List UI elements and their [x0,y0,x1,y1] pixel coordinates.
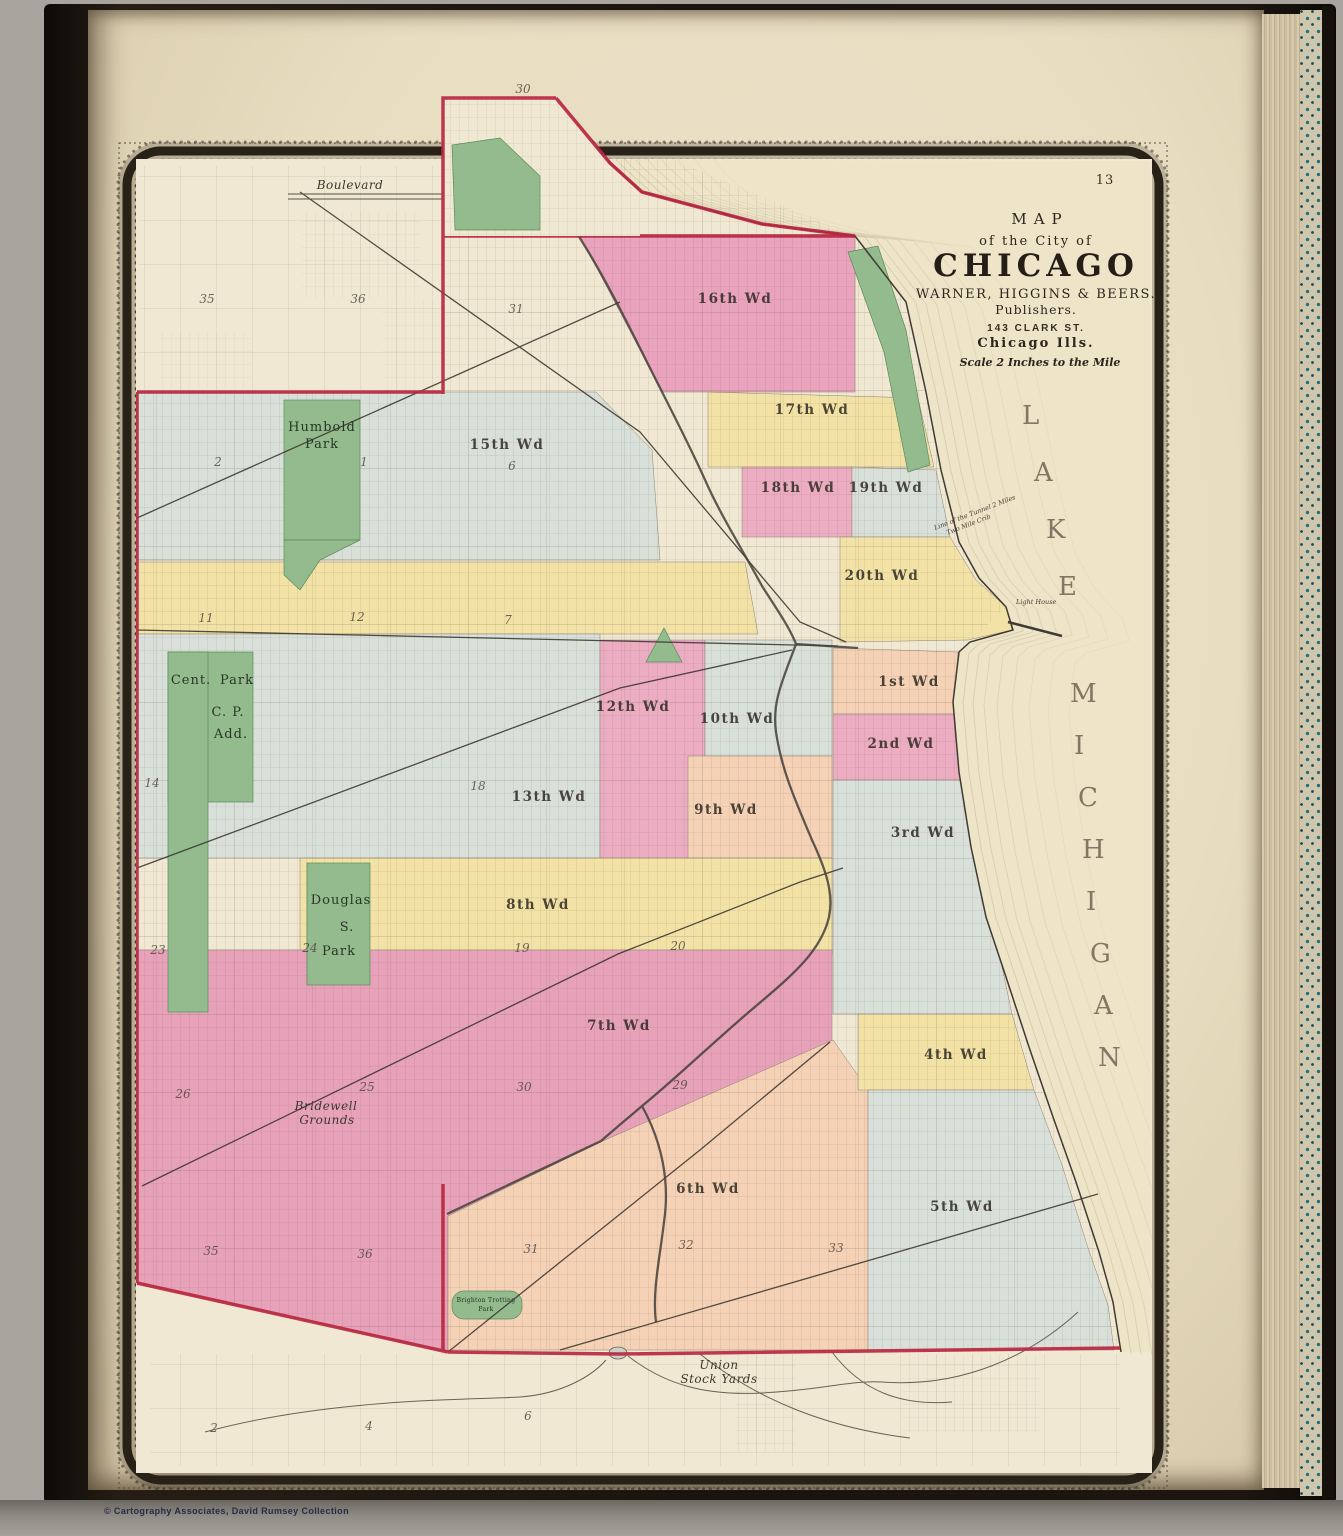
ward-label-18: 18th Wd [761,480,836,496]
stockyards-label-1: Union [699,1358,738,1372]
section-36b: 36 [357,1247,373,1261]
credit-text: © Cartography Associates, David Rumsey C… [104,1506,349,1516]
douglas-park-label-2: S. [340,920,355,935]
bridewell-label-2: Grounds [299,1113,354,1127]
section-35a: 35 [199,292,214,306]
central-park-strip [168,652,208,1012]
central-park-label-2: Park [220,673,254,688]
title-publisher-names: WARNER, HIGGINS & BEERS. [916,287,1156,302]
section-b2: 2 [209,1421,218,1435]
ward-label-10: 10th Wd [700,711,775,727]
ward-label-17: 17th Wd [775,402,850,418]
section-26: 26 [174,1087,191,1101]
ward-label-13: 13th Wd [512,789,587,805]
section-30-top: 30 [515,82,531,96]
douglas-park-label-1: Douglas [311,893,372,908]
section-31b: 31 [523,1242,538,1256]
title-chicago: CHICAGO [933,248,1139,284]
section-6: 6 [508,459,516,473]
section-33: 33 [828,1241,844,1255]
section-11: 11 [198,611,213,625]
section-36a: 36 [350,292,366,306]
section-18: 18 [470,779,486,793]
bridewell-label-1: Bridewell [294,1099,358,1113]
photo-of-atlas-page: { "page": { "number": "13" }, "credit": … [0,0,1343,1536]
central-park-label-1: Cent. [171,673,211,688]
map-artwork: 15th Wd 16th Wd 17th Wd 18th Wd 19th Wd … [0,0,1343,1536]
section-b6: 6 [524,1409,532,1423]
title-publishers: Publishers. [995,302,1077,317]
title-of-the-city-of: of the City of [979,234,1093,249]
section-7: 7 [504,613,512,627]
section-24: 24 [301,941,317,955]
boulevard-label: Boulevard [316,178,384,192]
section-b4: 4 [364,1419,373,1433]
ward-label-8: 8th Wd [506,897,570,913]
title-map: MAP [1011,210,1068,228]
ward-label-3: 3rd Wd [891,825,955,841]
brighton-trotting-park-area [452,1291,522,1319]
title-scale: Scale 2 Inches to the Mile [960,356,1121,369]
title-address: 143 CLARK ST. [987,323,1085,334]
section-29: 29 [671,1078,688,1092]
section-35b: 35 [203,1244,218,1258]
douglas-park-label-3: Park [322,944,356,959]
central-park-label-3: C. P. [212,705,245,720]
section-32: 32 [678,1238,693,1252]
central-park-label-4: Add. [213,727,248,742]
douglas-park-area [307,863,370,985]
lighthouse-label: Light House [1015,598,1057,606]
page-number: 13 [1096,173,1115,188]
ward-label-1: 1st Wd [878,674,940,690]
humboldt-park-label-2: Park [305,437,339,452]
ward-label-15: 15th Wd [470,437,545,453]
section-20: 20 [669,939,686,953]
section-31a: 31 [508,302,523,316]
brighton-park-label-2: Park [478,1306,493,1313]
section-30b: 30 [516,1080,532,1094]
photo-credit-bar: © Cartography Associates, David Rumsey C… [0,1500,1343,1536]
ward-label-2: 2nd Wd [868,736,935,752]
brighton-park-label-1: Brighton Trotting [457,1297,516,1304]
ward-label-6: 6th Wd [676,1181,740,1197]
humboldt-park-label-1: Humbold [288,420,356,435]
ward-label-7: 7th Wd [587,1018,651,1034]
section-19: 19 [514,941,530,955]
section-12: 12 [349,610,364,624]
ward-label-20: 20th Wd [845,568,920,584]
ward-label-5: 5th Wd [930,1199,994,1215]
ward-label-19: 19th Wd [849,480,924,496]
stockyards-label-2: Stock Yards [680,1372,757,1386]
title-city-state: Chicago Ills. [977,336,1094,351]
ward-label-4: 4th Wd [924,1047,988,1063]
section-2: 2 [213,455,222,469]
section-14: 14 [144,776,159,790]
ward-label-12: 12th Wd [596,699,671,715]
section-25: 25 [358,1080,374,1094]
ward-label-16: 16th Wd [698,291,773,307]
ward-label-9: 9th Wd [694,802,758,818]
section-1: 1 [360,455,368,469]
section-23: 23 [149,943,166,957]
